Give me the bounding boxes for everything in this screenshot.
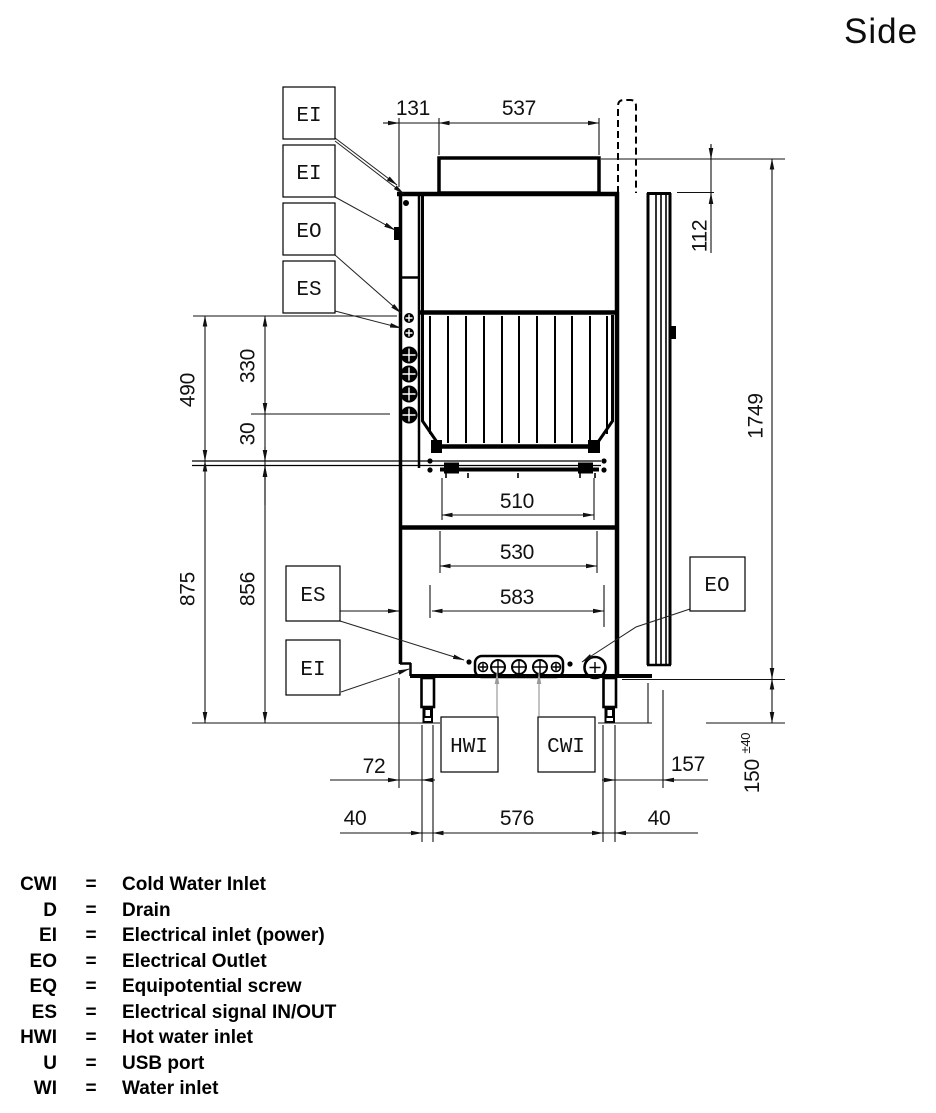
legend-row: EQ = Equipotential screw: [0, 976, 500, 1001]
dim-40l-label: 40: [344, 807, 367, 830]
legend-equals: =: [78, 1027, 104, 1049]
dim-490-label: 490: [177, 373, 200, 407]
legend-desc: Water inlet: [122, 1078, 218, 1100]
callout-es-bottom-label: ES: [300, 585, 325, 608]
water-leader-lines: [497, 673, 539, 716]
callout-cwi-label: CWI: [547, 736, 585, 759]
legend-desc: Hot water inlet: [122, 1027, 253, 1049]
dim-112-label: 112: [689, 220, 712, 253]
legend-row: EO = Electrical Outlet: [0, 951, 500, 976]
legend-equals: =: [78, 976, 104, 998]
legend-abbr: U: [0, 1053, 57, 1075]
callout-eo-top-label: EO: [296, 221, 321, 244]
legend-row: U = USB port: [0, 1053, 500, 1078]
legend-abbr: EQ: [0, 976, 57, 998]
exhaust-pipe: [618, 100, 636, 193]
legend-desc: Electrical Outlet: [122, 951, 267, 973]
legend-equals: =: [78, 874, 104, 896]
legend-row: ES = Electrical signal IN/OUT: [0, 1002, 500, 1027]
legend-abbr: EI: [0, 925, 57, 947]
technical-drawing: 131 537 112 1749 490 330 30 875 856 510 …: [0, 0, 936, 862]
legend-desc: Electrical signal IN/OUT: [122, 1002, 336, 1024]
legend-desc: Equipotential screw: [122, 976, 301, 998]
dim-40r-label: 40: [648, 807, 671, 830]
legend-abbr: ES: [0, 1002, 57, 1024]
dim-157-label: 157: [671, 753, 705, 776]
legend-abbr: D: [0, 900, 57, 922]
legend-row: CWI = Cold Water Inlet: [0, 874, 500, 899]
legend-equals: =: [78, 1078, 104, 1100]
legend-row: D = Drain: [0, 900, 500, 925]
dim-150-label: 150 ±40: [738, 733, 764, 793]
legs: [422, 678, 617, 722]
legend-row: EI = Electrical inlet (power): [0, 925, 500, 950]
callout-ei-bottom-label: EI: [300, 659, 325, 682]
side-connectors: [394, 200, 418, 424]
dim-30-label: 30: [237, 423, 260, 446]
callout-ei-2-label: EI: [296, 163, 321, 186]
dim-330-label: 330: [237, 349, 260, 383]
legend-abbr: HWI: [0, 1027, 57, 1049]
page: Side: [0, 0, 936, 1113]
power-inlet-icon: [394, 227, 401, 240]
door-corner-left: [431, 440, 442, 453]
legend-row: HWI = Hot water inlet: [0, 1027, 500, 1052]
dim-856-label: 856: [237, 572, 260, 606]
callout-boxes: EI EI EO ES ES EI EO HWI CWI: [283, 87, 745, 772]
legend-equals: =: [78, 951, 104, 973]
dim-150-tolerance: ±40: [738, 733, 753, 754]
door-corner-right: [588, 440, 600, 453]
legend-row: WI = Water inlet: [0, 1078, 500, 1103]
legend-desc: Electrical inlet (power): [122, 925, 325, 947]
legend-abbr: WI: [0, 1078, 57, 1100]
callout-es-top-label: ES: [296, 279, 321, 302]
legend-desc: USB port: [122, 1053, 204, 1075]
dim-72-label: 72: [363, 755, 386, 778]
top-hood-box: [439, 158, 599, 193]
dim-131-label: 131: [396, 97, 430, 120]
rear-panel: [647, 193, 671, 665]
equipotential-screw-icon: [669, 326, 676, 339]
legend-equals: =: [78, 925, 104, 947]
legend-abbr: EO: [0, 951, 57, 973]
legend-equals: =: [78, 1002, 104, 1024]
callout-ei-1-label: EI: [296, 105, 321, 128]
dim-537-label: 537: [502, 97, 536, 120]
dim-583-label: 583: [500, 586, 534, 609]
callout-hwi-label: HWI: [450, 736, 488, 759]
legend-abbr: CWI: [0, 874, 57, 896]
callout-eo-bottom-label: EO: [704, 575, 729, 598]
legend-desc: Drain: [122, 900, 171, 922]
legend-desc: Cold Water Inlet: [122, 874, 266, 896]
legend-equals: =: [78, 900, 104, 922]
dim-530-label: 530: [500, 541, 534, 564]
dim-875-label: 875: [177, 572, 200, 606]
dim-576-label: 576: [500, 807, 534, 830]
ribbed-door: [430, 316, 607, 443]
dim-510-label: 510: [500, 490, 534, 513]
dim-1749-label: 1749: [745, 393, 768, 439]
legend-equals: =: [78, 1053, 104, 1075]
connector-dot: [403, 200, 409, 206]
dim-150-value: 150: [741, 759, 764, 793]
